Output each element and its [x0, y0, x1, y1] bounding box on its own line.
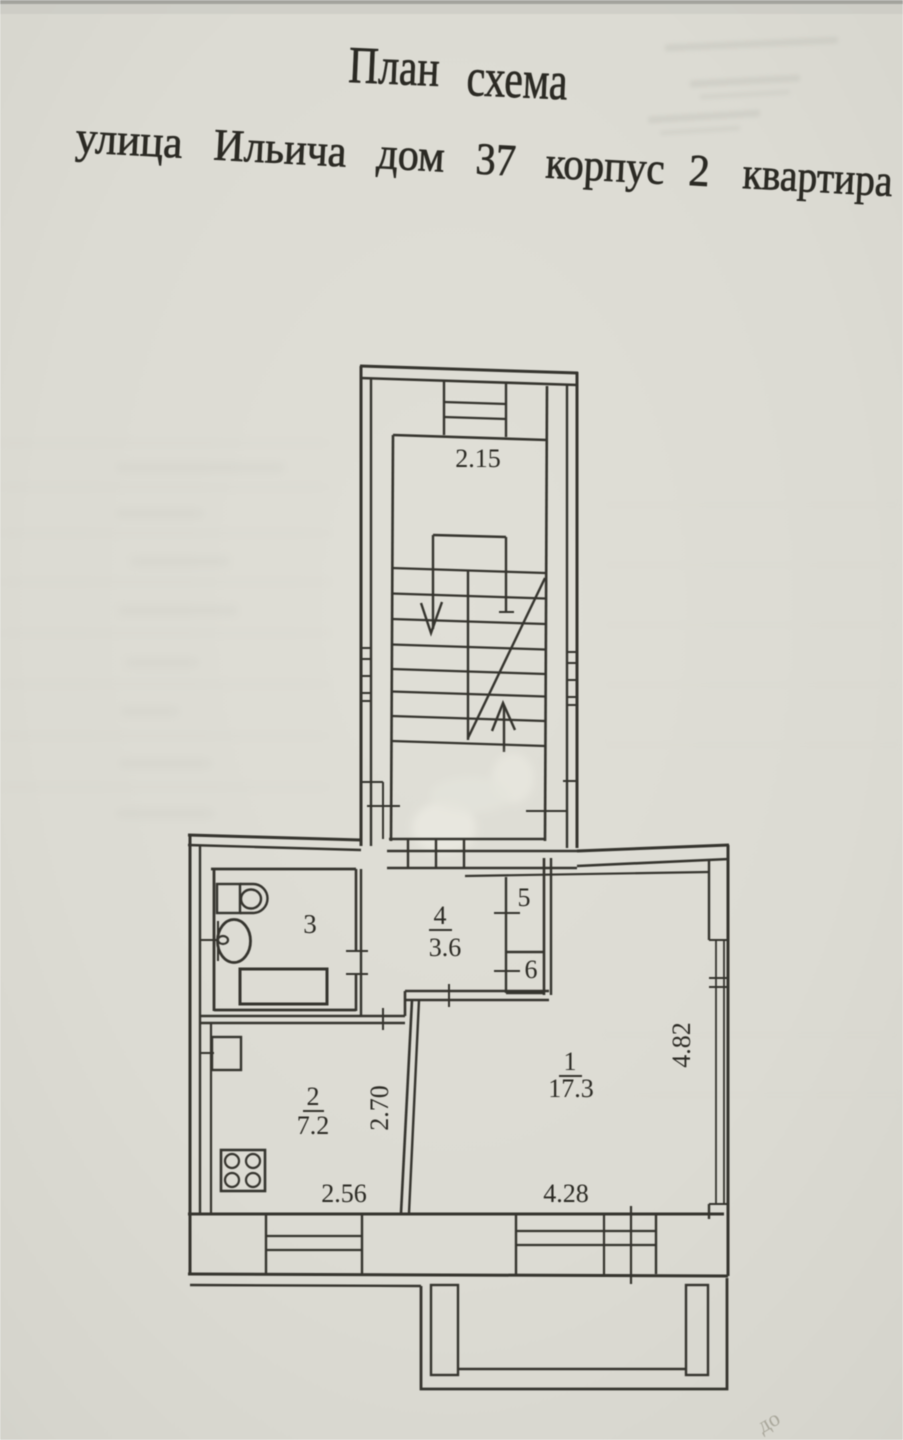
svg-text:5: 5 — [518, 883, 531, 912]
svg-text:7.2: 7.2 — [297, 1111, 330, 1140]
svg-text:3.6: 3.6 — [429, 933, 462, 962]
svg-text:улица: улица — [74, 112, 184, 168]
svg-text:2.56: 2.56 — [321, 1179, 367, 1208]
svg-text:3: 3 — [303, 909, 317, 939]
svg-text:6: 6 — [525, 955, 538, 984]
svg-text:дом: дом — [375, 128, 446, 182]
svg-text:4.82: 4.82 — [667, 1022, 696, 1068]
svg-text:квартира: квартира — [741, 148, 894, 206]
svg-text:2: 2 — [307, 1082, 320, 1111]
svg-text:2: 2 — [687, 145, 711, 196]
svg-text:2.15: 2.15 — [455, 444, 501, 473]
svg-text:17.3: 17.3 — [548, 1074, 594, 1103]
svg-text:Ильича: Ильича — [212, 120, 348, 177]
svg-text:План: План — [347, 37, 440, 98]
svg-text:4.28: 4.28 — [543, 1179, 589, 1208]
svg-text:4: 4 — [434, 901, 447, 930]
svg-text:1: 1 — [564, 1047, 577, 1076]
svg-text:2.70: 2.70 — [365, 1085, 394, 1131]
svg-text:схема: схема — [465, 47, 569, 111]
svg-text:37: 37 — [474, 134, 517, 186]
svg-text:корпус: корпус — [544, 138, 666, 194]
